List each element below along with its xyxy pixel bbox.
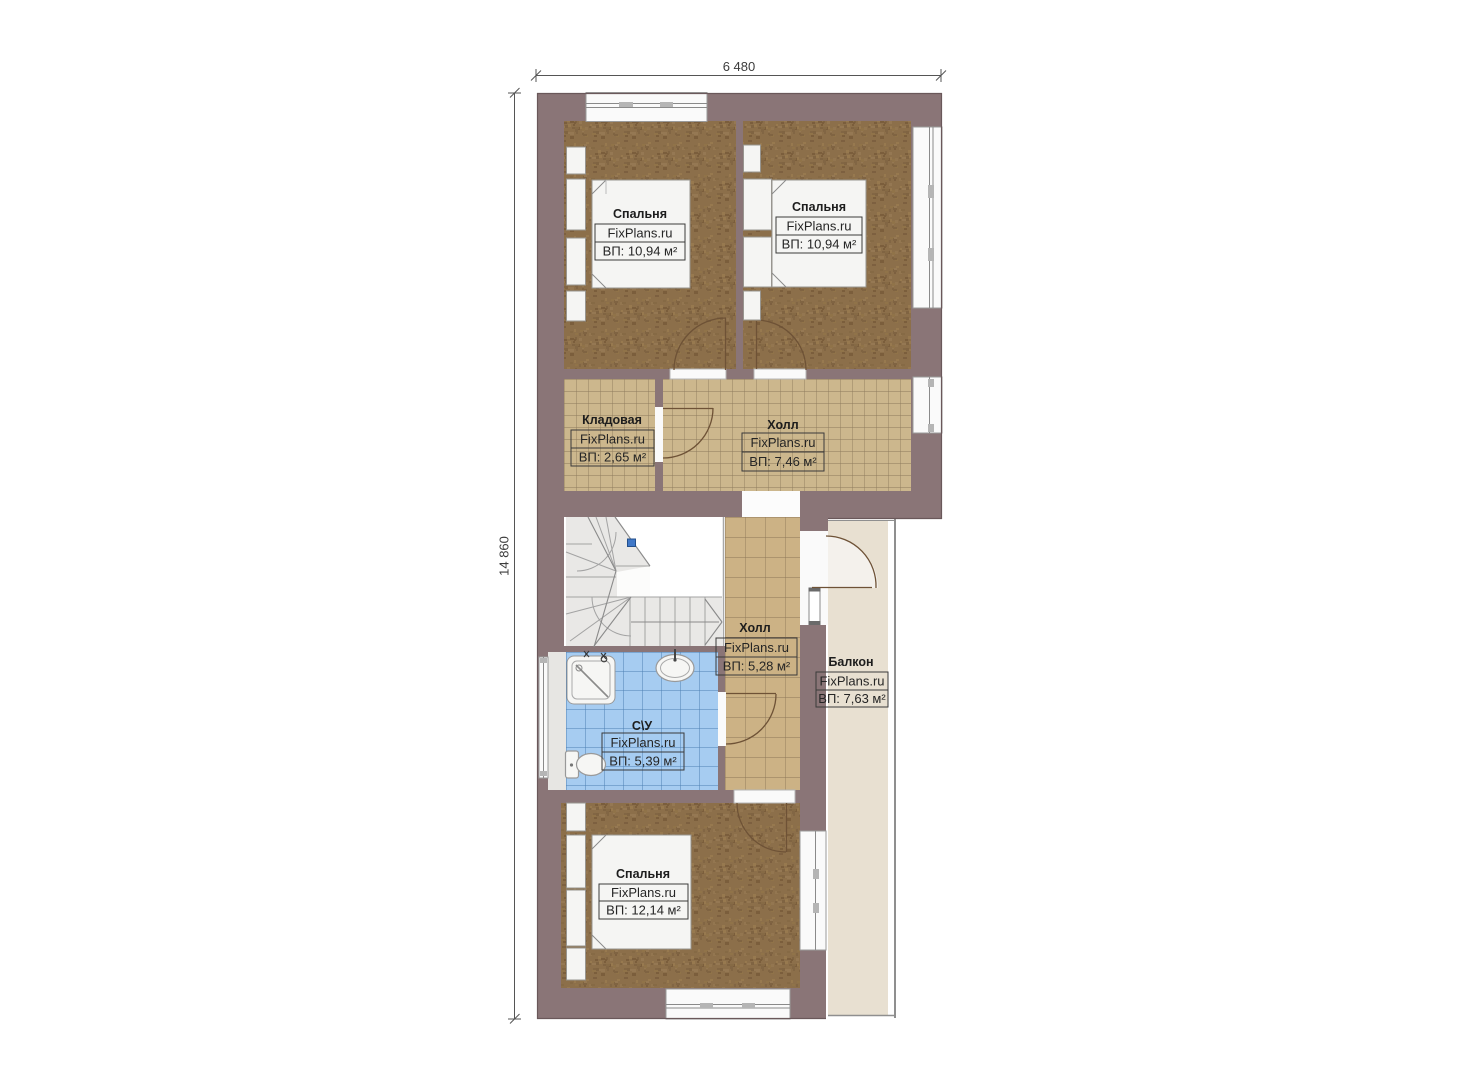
svg-text:FixPlans.ru: FixPlans.ru bbox=[610, 735, 675, 750]
svg-text:FixPlans.ru: FixPlans.ru bbox=[750, 435, 815, 450]
svg-text:FixPlans.ru: FixPlans.ru bbox=[724, 640, 789, 655]
svg-text:ВП: 7,63 м²: ВП: 7,63 м² bbox=[818, 691, 886, 706]
svg-text:ВП: 10,94 м²: ВП: 10,94 м² bbox=[782, 237, 857, 252]
svg-text:ВП: 2,65 м²: ВП: 2,65 м² bbox=[579, 450, 647, 465]
svg-text:FixPlans.ru: FixPlans.ru bbox=[611, 885, 676, 900]
svg-text:Спальня: Спальня bbox=[616, 867, 670, 881]
svg-text:14 860: 14 860 bbox=[497, 536, 512, 576]
svg-text:FixPlans.ru: FixPlans.ru bbox=[819, 674, 884, 689]
svg-text:ВП: 5,28 м²: ВП: 5,28 м² bbox=[723, 659, 791, 674]
svg-text:Спальня: Спальня bbox=[792, 200, 846, 214]
svg-text:Балкон: Балкон bbox=[828, 655, 873, 669]
svg-text:ВП: 7,46 м²: ВП: 7,46 м² bbox=[749, 454, 817, 469]
svg-text:ВП: 5,39 м²: ВП: 5,39 м² bbox=[609, 754, 677, 769]
svg-text:ВП: 10,94 м²: ВП: 10,94 м² bbox=[603, 244, 678, 259]
svg-text:FixPlans.ru: FixPlans.ru bbox=[786, 219, 851, 234]
svg-text:Холл: Холл bbox=[739, 621, 770, 635]
svg-text:Кладовая: Кладовая bbox=[582, 413, 642, 427]
svg-text:Холл: Холл bbox=[767, 418, 798, 432]
svg-text:С\У: С\У bbox=[632, 719, 653, 733]
svg-text:FixPlans.ru: FixPlans.ru bbox=[607, 226, 672, 241]
svg-text:Спальня: Спальня bbox=[613, 207, 667, 221]
svg-text:FixPlans.ru: FixPlans.ru bbox=[580, 432, 645, 447]
svg-text:ВП: 12,14 м²: ВП: 12,14 м² bbox=[606, 903, 681, 918]
svg-text:6 480: 6 480 bbox=[723, 59, 756, 74]
